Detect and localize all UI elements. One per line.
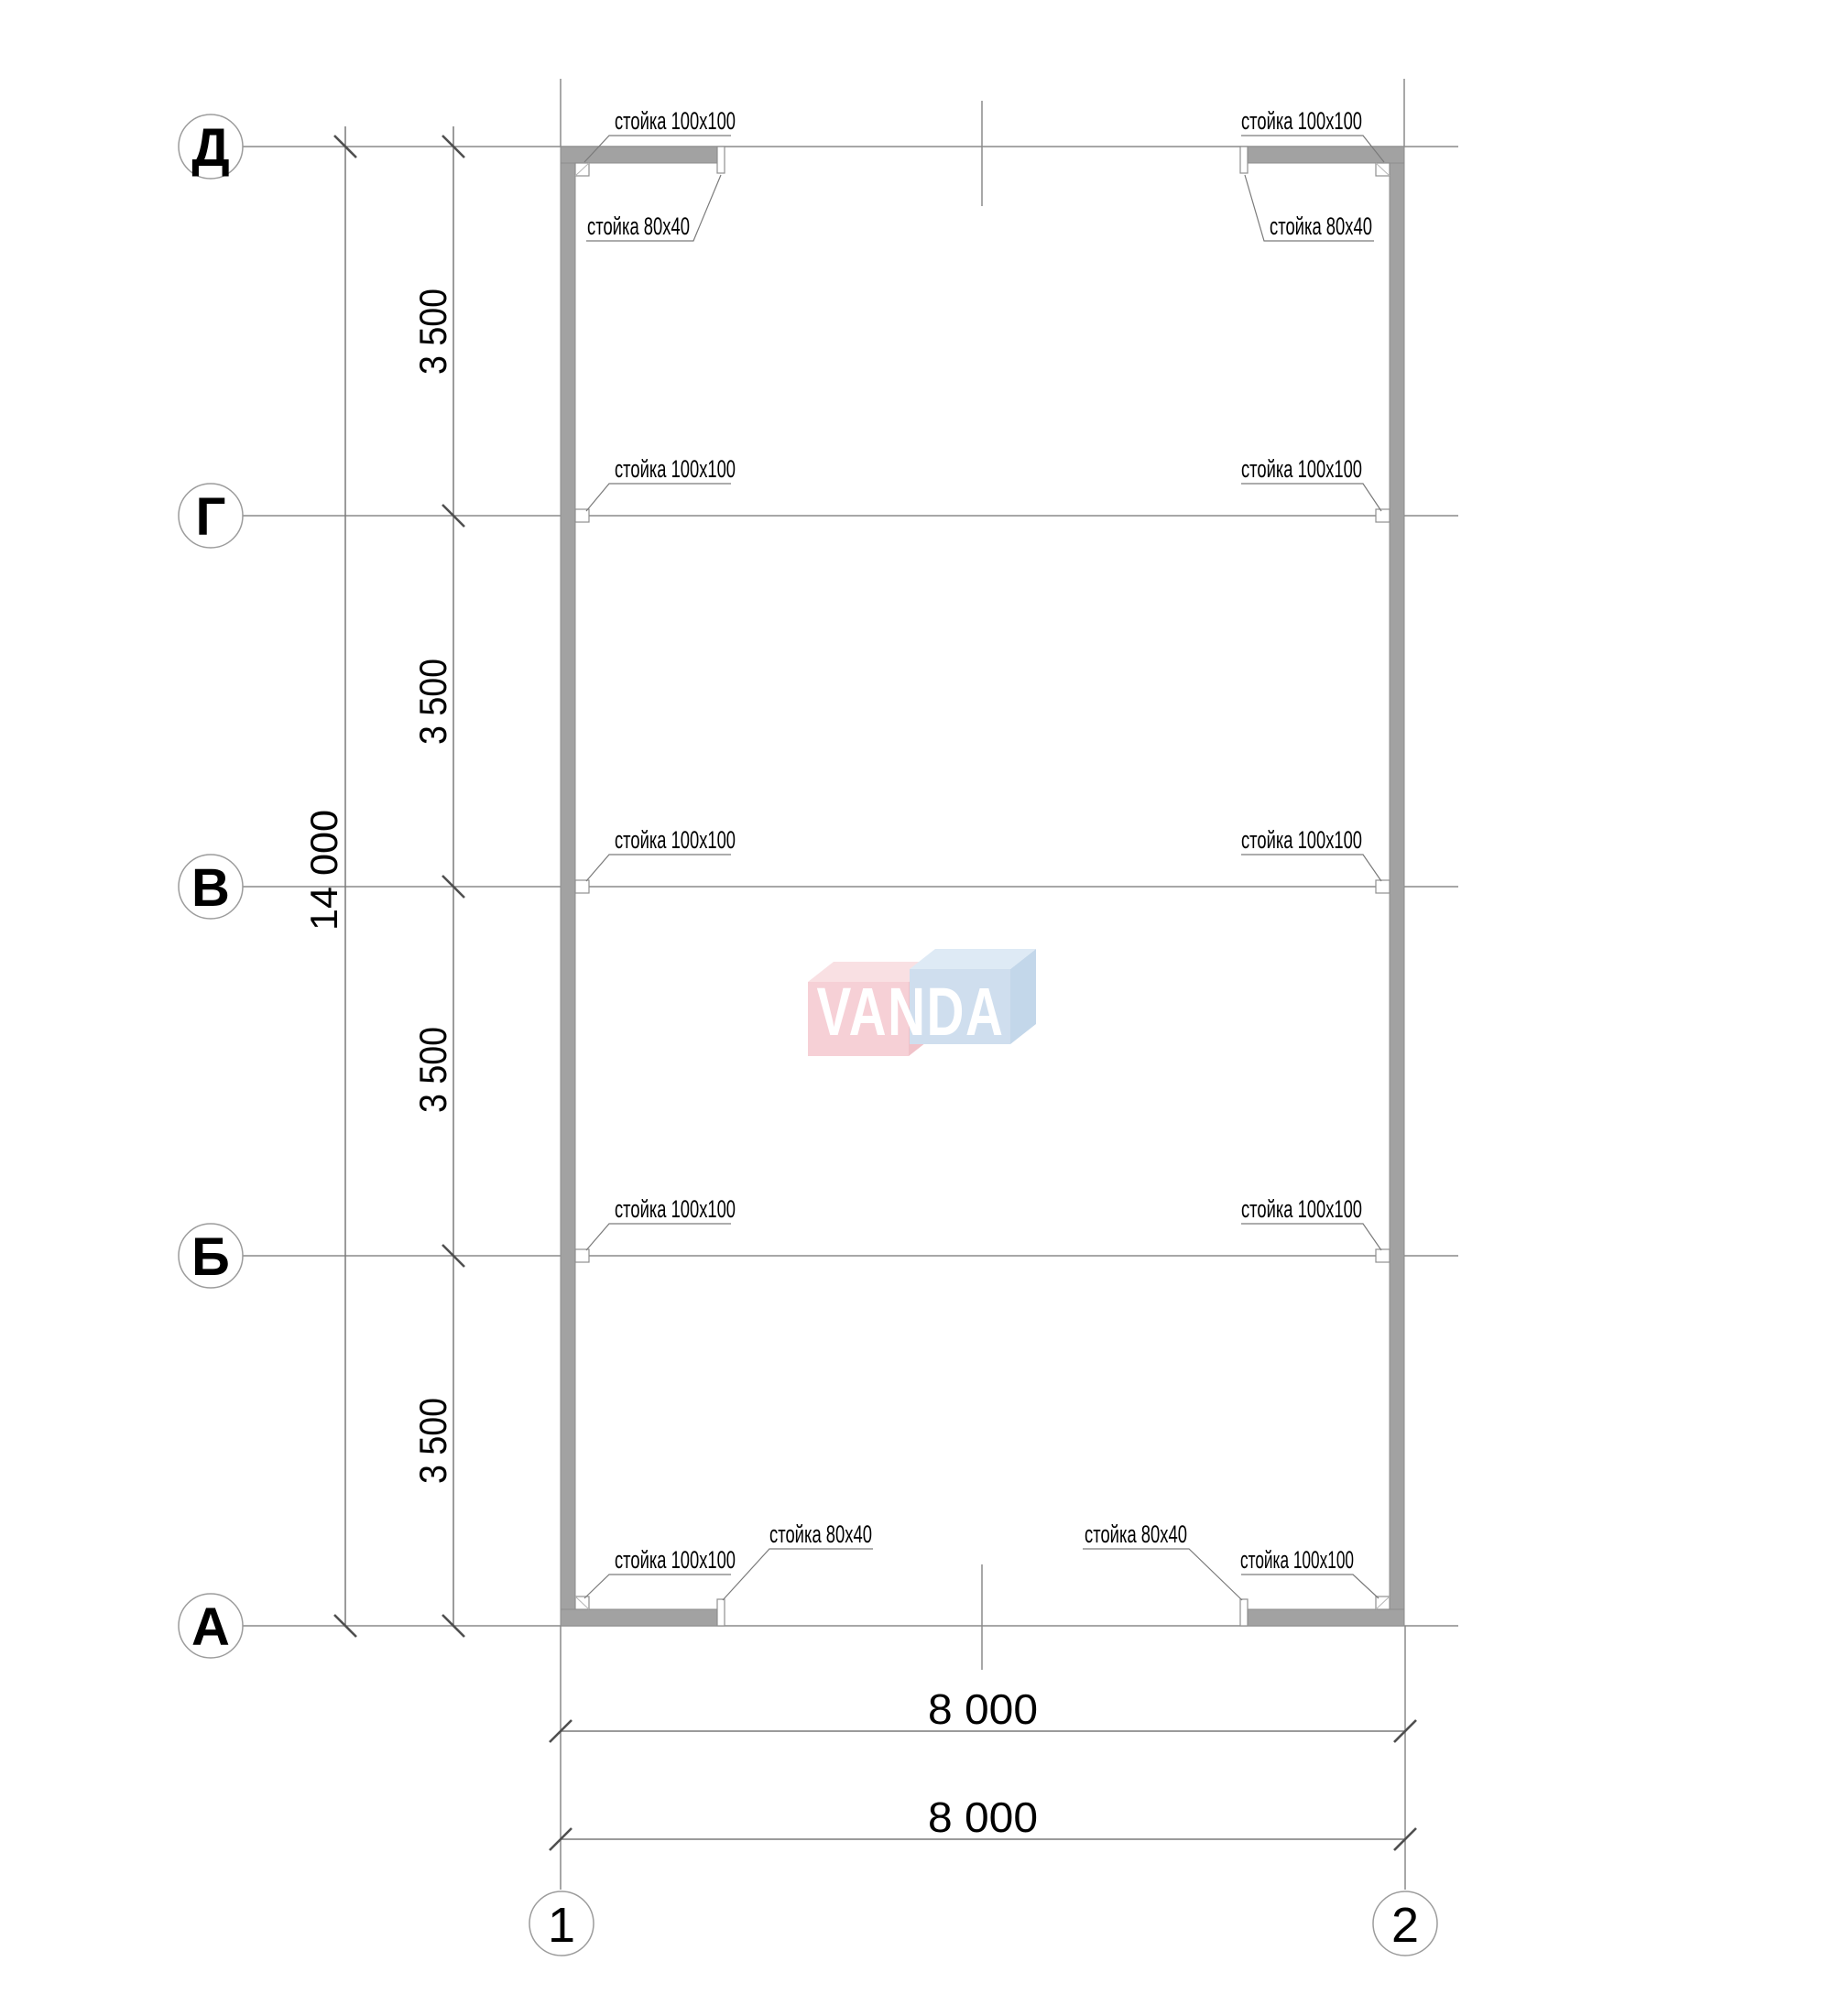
leader-line (1241, 484, 1381, 511)
post-label: стойка 80x40 (1085, 1520, 1187, 1548)
post-80x40-bottom-left (717, 1599, 725, 1626)
post-label: стойка 100x100 (1241, 107, 1362, 135)
plan-drawing: VANDA 14 000 3 500 3 500 3 500 3 500 8 0… (0, 0, 1832, 2016)
post-80x40-top-right (1240, 147, 1248, 173)
leader-line (586, 1224, 731, 1250)
post-100x100-right-v (1376, 880, 1390, 893)
post-label: стойка 80x40 (1270, 212, 1372, 240)
dim-text-segment-4: 3 500 (411, 1398, 454, 1484)
post-100x100-left-v (575, 880, 589, 893)
post-100x100-right-b (1376, 1249, 1390, 1262)
vertical-dimensions: 14 000 3 500 3 500 3 500 3 500 (302, 126, 464, 1637)
axis-bubble-label: В (191, 858, 230, 918)
post-80x40-top-left (717, 147, 725, 173)
dim-text-width-bottom: 8 000 (928, 1793, 1038, 1841)
axis-bubble-label: 2 (1391, 1898, 1419, 1953)
post-label: стойка 100x100 (1241, 826, 1362, 854)
dim-text-segment-1: 3 500 (411, 289, 454, 375)
post-annotations: стойка 100x100 стойка 80x40 стойка 100x1… (584, 107, 1384, 1600)
axis-bubble-label: Д (191, 118, 229, 178)
post-label: стойка 100x100 (615, 1195, 736, 1223)
post-80x40-bottom-right (1240, 1599, 1248, 1626)
dim-text-width-top: 8 000 (928, 1685, 1038, 1733)
axis-bubble-label: Г (196, 487, 226, 547)
dim-text-segment-2: 3 500 (411, 659, 454, 745)
leader-line (1241, 1224, 1381, 1250)
axis-bubble-label: 1 (548, 1898, 575, 1953)
horizontal-dimensions: 8 000 8 000 (550, 1685, 1416, 1850)
wall-top-left (561, 147, 717, 163)
leader-line (586, 484, 731, 511)
leader-line (586, 855, 731, 881)
post-label: стойка 100x100 (1241, 1195, 1362, 1223)
logo-wordmark: VANDA (817, 974, 1005, 1050)
axis-bubble-label: Б (191, 1227, 230, 1287)
post-label: стойка 100x100 (615, 455, 736, 483)
leader-line (1083, 1549, 1242, 1600)
floor-plan-canvas: VANDA 14 000 3 500 3 500 3 500 3 500 8 0… (0, 0, 1832, 2016)
column-axis-bubbles: 1 2 (529, 1891, 1437, 1956)
leader-line (584, 1575, 731, 1598)
axis-bubble-label: А (191, 1597, 230, 1657)
vanda-watermark: VANDA (808, 949, 1036, 1056)
wall-left (561, 147, 575, 1626)
dim-text-overall-height: 14 000 (302, 810, 345, 931)
post-100x100-left-b (575, 1249, 589, 1262)
dim-text-segment-3: 3 500 (411, 1027, 454, 1113)
post-label: стойка 100x100 (615, 826, 736, 854)
post-label: стойка 100x100 (615, 107, 736, 135)
wall-right (1390, 147, 1404, 1626)
row-axis-bubbles: Д Г В Б А (179, 114, 243, 1658)
post-label: стойка 100x100 (615, 1546, 736, 1574)
post-100x100-left-g (575, 509, 589, 522)
leader-line (1241, 855, 1381, 881)
wall-top-right (1248, 147, 1404, 163)
post-label: стойка 100x100 (1241, 455, 1362, 483)
wall-bottom-left (561, 1609, 717, 1626)
leader-line (723, 1549, 873, 1600)
wall-bottom-right (1248, 1609, 1404, 1626)
post-label: стойка 100x100 (1240, 1546, 1354, 1574)
post-label: стойка 80x40 (587, 212, 690, 240)
leader-line (1241, 1575, 1379, 1598)
post-100x100-right-g (1376, 509, 1390, 522)
post-label: стойка 80x40 (769, 1520, 872, 1548)
